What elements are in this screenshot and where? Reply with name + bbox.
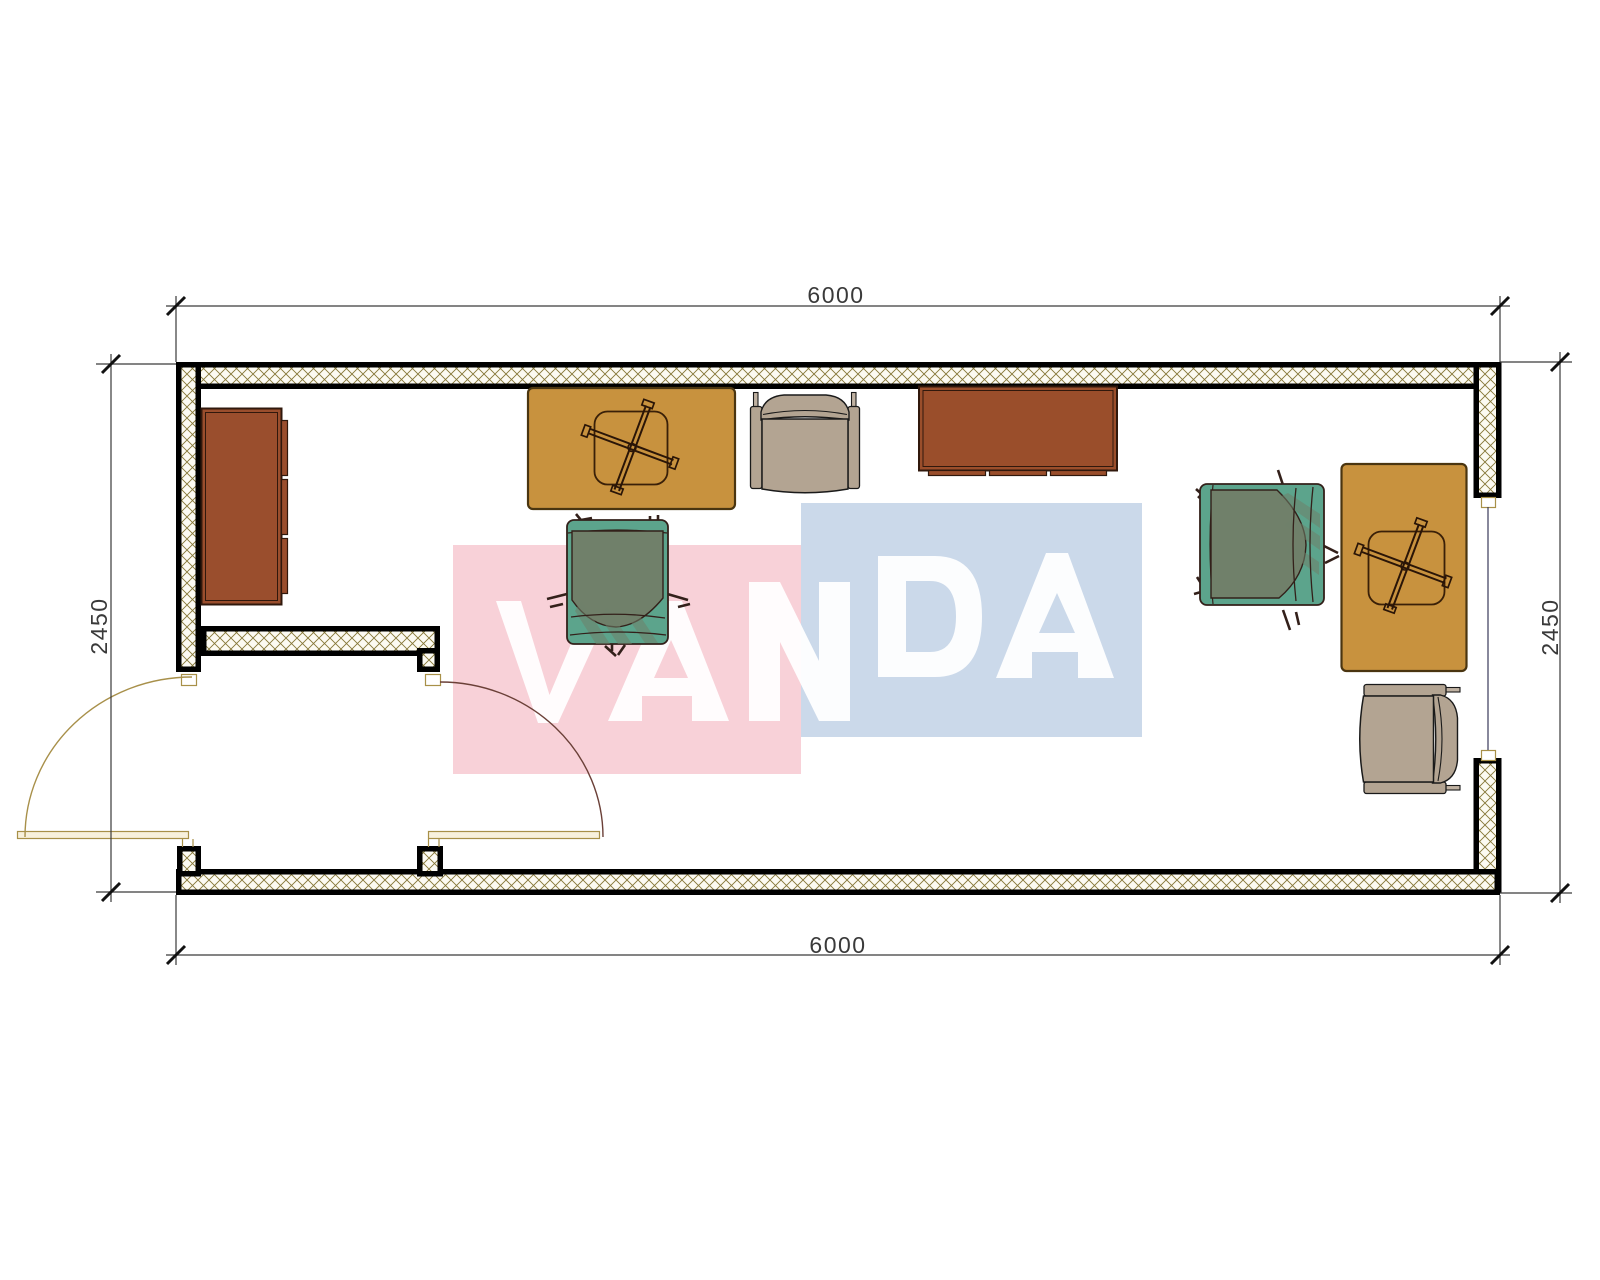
svg-text:6000: 6000: [809, 932, 866, 958]
svg-text:6000: 6000: [807, 282, 864, 308]
svg-text:2450: 2450: [86, 597, 112, 654]
svg-text:2450: 2450: [1537, 598, 1563, 655]
